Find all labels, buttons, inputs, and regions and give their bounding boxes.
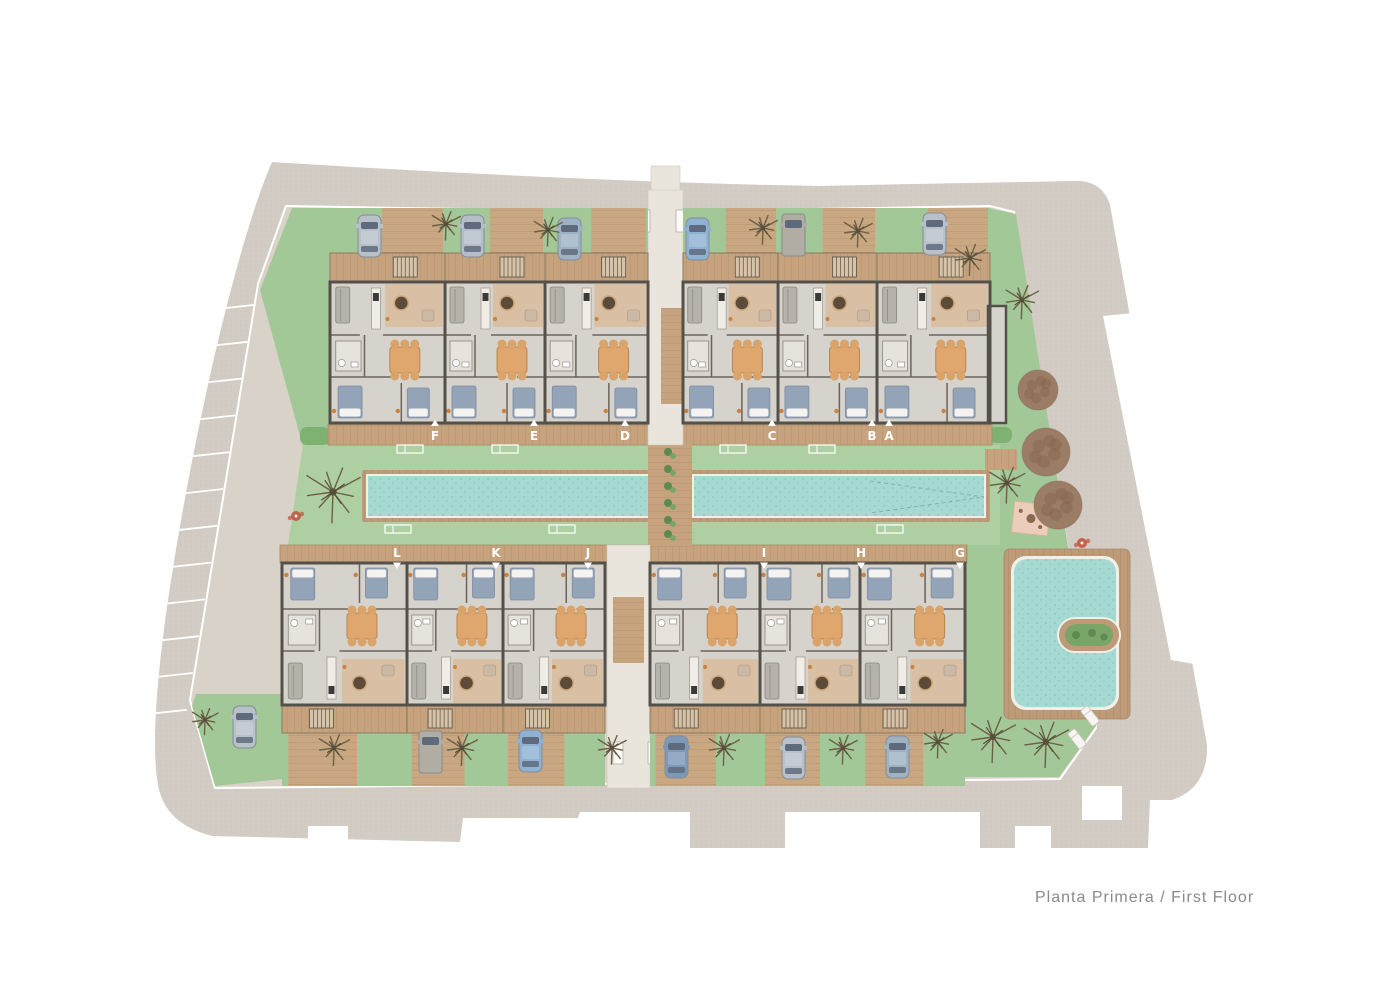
lap-pool-right	[688, 470, 990, 522]
car	[780, 737, 807, 779]
svg-text:C: C	[768, 429, 777, 443]
svg-text:J: J	[585, 546, 590, 560]
unit-E	[445, 208, 545, 423]
site-plan-drawing: FEDCBALKJIHG	[0, 0, 1400, 990]
car	[231, 706, 258, 748]
canopy-tree	[1018, 370, 1058, 410]
svg-text:B: B	[867, 429, 876, 443]
unit-F	[330, 208, 445, 423]
svg-text:H: H	[856, 546, 866, 560]
garden-pool	[1004, 549, 1130, 719]
central-walkway-north	[648, 166, 683, 445]
plan-title: Planta Primera / First Floor	[1035, 889, 1254, 907]
unit-J	[503, 563, 605, 786]
unit-H	[760, 563, 860, 786]
car	[684, 218, 711, 260]
svg-text:L: L	[393, 546, 401, 560]
svg-text:K: K	[491, 546, 501, 560]
canopy-tree	[1034, 481, 1082, 529]
svg-text:G: G	[955, 546, 965, 560]
van	[417, 731, 444, 773]
svg-text:I: I	[762, 546, 766, 560]
car	[356, 215, 383, 257]
unit-G	[860, 563, 965, 786]
car	[517, 730, 544, 772]
unit-L	[282, 563, 407, 786]
site-plan-page: FEDCBALKJIHG Planta Primera / First Floo…	[0, 0, 1400, 990]
svg-text:D: D	[620, 429, 630, 443]
lap-pool-left	[362, 470, 654, 522]
car	[921, 213, 948, 255]
van	[780, 214, 807, 256]
canopy-tree	[1022, 428, 1070, 476]
svg-text:A: A	[884, 429, 894, 443]
pool-amenity-strip	[280, 425, 1012, 563]
car	[459, 215, 486, 257]
car	[663, 736, 690, 778]
svg-text:F: F	[431, 429, 439, 443]
svg-text:E: E	[530, 429, 538, 443]
car	[884, 736, 911, 778]
pool-crossing-walkway	[648, 443, 692, 547]
